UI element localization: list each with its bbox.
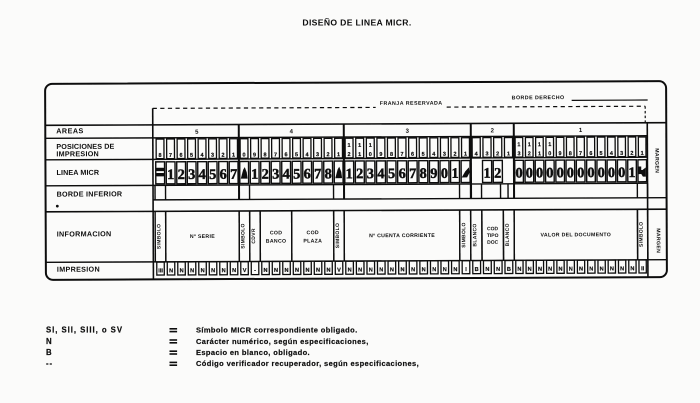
svg-text:N: N (326, 268, 330, 274)
svg-text:1: 1 (369, 143, 372, 149)
svg-text:4: 4 (199, 167, 206, 183)
svg-text:0: 0 (536, 165, 543, 181)
svg-text:N: N (496, 267, 500, 273)
svg-text:N: N (528, 267, 532, 273)
svg-text:N: N (190, 268, 194, 274)
svg-text:II: II (641, 266, 645, 272)
svg-text:BANCO: BANCO (266, 239, 287, 245)
svg-text:IMPRESION: IMPRESION (57, 265, 100, 274)
svg-text:8: 8 (264, 152, 267, 158)
svg-text:2: 2 (630, 151, 633, 157)
svg-text:CDVR: CDVR (251, 228, 257, 243)
svg-text:N: N (232, 268, 236, 274)
svg-text:N: N (548, 267, 552, 273)
svg-text:Espacio en blanco, obligado.: Espacio en blanco, obligado. (196, 348, 310, 357)
svg-text:9: 9 (253, 152, 256, 158)
svg-text:N: N (46, 337, 53, 346)
svg-text:5: 5 (295, 152, 298, 158)
svg-text:0: 0 (546, 165, 553, 181)
svg-text:8: 8 (159, 153, 162, 159)
svg-text:VALOR DEL DOCUMENTO: VALOR DEL DOCUMENTO (541, 232, 612, 238)
svg-text:1: 1 (548, 142, 551, 148)
svg-text:1: 1 (528, 142, 531, 148)
svg-text:N: N (630, 266, 634, 272)
svg-text:3: 3 (620, 151, 623, 157)
svg-text:1: 1 (251, 167, 258, 183)
svg-text:B: B (507, 267, 511, 273)
svg-text:--: -- (46, 359, 53, 368)
svg-text:2: 2 (262, 167, 269, 183)
svg-text:N: N (411, 267, 415, 273)
svg-text:2: 2 (496, 151, 499, 157)
svg-text:1: 1 (337, 152, 340, 158)
svg-text:N: N (558, 267, 562, 273)
svg-text:N: N (284, 268, 288, 274)
svg-text:B: B (46, 348, 53, 357)
svg-text:V: V (337, 268, 341, 274)
svg-text:COD: COD (487, 226, 499, 232)
svg-text:2: 2 (348, 152, 351, 158)
svg-text:0: 0 (618, 165, 625, 181)
svg-text:MARGEN: MARGEN (653, 148, 659, 173)
svg-text:0: 0 (243, 152, 246, 158)
svg-text:1: 1 (464, 152, 467, 158)
svg-text:1: 1 (538, 151, 541, 157)
svg-text:V: V (243, 268, 247, 274)
svg-text:N: N (610, 266, 614, 272)
svg-text:1: 1 (641, 151, 644, 157)
svg-text:0: 0 (608, 165, 615, 181)
svg-text:6: 6 (220, 167, 227, 183)
svg-text:N: N (379, 267, 383, 273)
svg-text:7: 7 (401, 152, 404, 158)
svg-text:N: N (485, 267, 489, 273)
svg-text:3: 3 (443, 152, 446, 158)
svg-text:N: N (600, 266, 604, 272)
svg-text:BLANCO: BLANCO (472, 223, 478, 246)
svg-text:6: 6 (411, 152, 414, 158)
svg-text:0: 0 (587, 165, 594, 181)
svg-text:2: 2 (222, 153, 225, 159)
svg-text:-: - (254, 268, 256, 274)
svg-text:7: 7 (230, 167, 237, 183)
svg-text:1: 1 (507, 151, 510, 157)
svg-text:N: N (422, 267, 426, 273)
svg-text:8: 8 (569, 151, 572, 157)
svg-text:2: 2 (178, 167, 185, 183)
svg-text:N: N (390, 267, 394, 273)
svg-text:N: N (263, 268, 267, 274)
svg-text:BLANCO: BLANCO (505, 223, 511, 246)
svg-text:1: 1 (483, 166, 490, 182)
svg-text:III: III (158, 268, 163, 274)
svg-text:N: N (295, 268, 299, 274)
svg-text:N: N (453, 267, 457, 273)
svg-text:9: 9 (430, 166, 437, 182)
svg-text:5: 5 (388, 166, 395, 182)
svg-text:2: 2 (453, 152, 456, 158)
svg-text:N: N (211, 268, 215, 274)
svg-text:Código verificador recuperador: Código verificador recuperador, según es… (196, 359, 419, 368)
svg-text:TIPO: TIPO (487, 233, 499, 239)
svg-text:8: 8 (390, 152, 393, 158)
svg-text:9: 9 (379, 152, 382, 158)
svg-text:N: N (620, 266, 624, 272)
svg-text:N: N (538, 267, 542, 273)
svg-text:4: 4 (377, 166, 384, 182)
svg-text:2: 2 (356, 166, 363, 182)
svg-text:1: 1 (358, 152, 361, 158)
svg-text:2: 2 (494, 166, 501, 182)
svg-text:1: 1 (451, 166, 458, 182)
svg-text:Nº CUENTA CORRIENTE: Nº CUENTA CORRIENTE (369, 233, 435, 239)
svg-text:0: 0 (557, 165, 564, 181)
svg-text:BORDE DERECHO: BORDE DERECHO (512, 95, 565, 101)
svg-text:N: N (443, 267, 447, 273)
svg-text:N: N (316, 268, 320, 274)
svg-text:LINEA MICR: LINEA MICR (56, 168, 99, 177)
svg-text:5: 5 (190, 153, 193, 159)
svg-text:IMPRESION: IMPRESION (56, 149, 99, 158)
svg-text:B: B (475, 267, 479, 273)
svg-text:3: 3 (517, 151, 520, 157)
svg-text:BORDE INFERIOR: BORDE INFERIOR (57, 189, 123, 198)
svg-text:0: 0 (598, 165, 605, 181)
svg-text:1: 1 (348, 143, 351, 149)
svg-text:3: 3 (316, 152, 319, 158)
svg-text:5: 5 (422, 152, 425, 158)
svg-text:3: 3 (188, 167, 195, 183)
svg-text:N: N (579, 267, 583, 273)
svg-text:N: N (222, 268, 226, 274)
svg-text:6: 6 (589, 151, 592, 157)
svg-text:N: N (201, 268, 205, 274)
svg-text:Símbolo MICR correspondiente o: Símbolo MICR correspondiente obligado. (196, 326, 358, 335)
svg-text:1: 1 (167, 167, 174, 183)
svg-text:2: 2 (327, 152, 330, 158)
svg-text:N: N (400, 267, 404, 273)
svg-text:SIMBOLO: SIMBOLO (156, 224, 162, 249)
svg-text:2: 2 (528, 151, 531, 157)
svg-text:N: N (274, 268, 278, 274)
svg-text:9: 9 (559, 151, 562, 157)
svg-text:COD: COD (306, 230, 318, 236)
svg-text:5: 5 (293, 166, 300, 182)
svg-text:0: 0 (526, 165, 533, 181)
svg-text:7: 7 (409, 166, 416, 182)
svg-text:0: 0 (369, 152, 372, 158)
svg-text:0: 0 (577, 165, 584, 181)
svg-text:INFORMACION: INFORMACION (57, 229, 112, 238)
svg-text:5: 5 (600, 151, 603, 157)
svg-text:7: 7 (579, 151, 582, 157)
svg-text:N: N (569, 267, 573, 273)
svg-text:SIMBOLO: SIMBOLO (461, 222, 467, 247)
svg-text:3: 3 (211, 153, 214, 159)
svg-text:3: 3 (485, 151, 488, 157)
svg-text:1: 1 (346, 166, 353, 182)
svg-text:0: 0 (441, 166, 448, 182)
svg-text:6: 6 (399, 166, 406, 182)
svg-text:N: N (517, 267, 521, 273)
svg-text:1: 1 (538, 142, 541, 148)
svg-text:FRANJA RESERVADA: FRANJA RESERVADA (380, 101, 443, 107)
svg-text:0: 0 (567, 165, 574, 181)
svg-text:6: 6 (304, 166, 311, 182)
svg-text:0: 0 (548, 151, 551, 157)
svg-text:SIMBOLO: SIMBOLO (639, 222, 645, 247)
svg-text:1: 1 (358, 143, 361, 149)
svg-text:N: N (169, 268, 173, 274)
svg-text:MARGEN: MARGEN (655, 228, 661, 253)
svg-text:N: N (432, 267, 436, 273)
svg-text:DISEÑO DE LINEA MICR.: DISEÑO DE LINEA MICR. (302, 18, 411, 28)
svg-text:6: 6 (180, 153, 183, 159)
svg-text:SI, SII, SIII, o SV: SI, SII, SIII, o SV (46, 326, 123, 335)
svg-text:SIMBOLO: SIMBOLO (335, 223, 341, 248)
svg-text:SIMBOLO: SIMBOLO (240, 223, 246, 248)
svg-text:5: 5 (209, 167, 216, 183)
svg-text:Carácter numérico, según espec: Carácter numérico, según especificacione… (196, 337, 369, 346)
svg-text:PLAZA: PLAZA (303, 238, 322, 244)
svg-text:N: N (369, 267, 373, 273)
svg-text:AREAS: AREAS (56, 126, 83, 135)
svg-text:8: 8 (325, 166, 332, 182)
svg-text:7: 7 (314, 166, 321, 182)
svg-text:Nº SERIE: Nº SERIE (190, 234, 215, 240)
svg-text:1: 1 (628, 165, 635, 181)
svg-text:N: N (589, 266, 593, 272)
svg-text:N: N (305, 268, 309, 274)
svg-text:N: N (348, 268, 352, 274)
svg-text:1: 1 (517, 142, 520, 148)
svg-text:8: 8 (420, 166, 427, 182)
svg-text:DOC: DOC (487, 240, 499, 246)
svg-text:4: 4 (283, 166, 290, 182)
svg-text:N: N (358, 267, 362, 273)
svg-text:0: 0 (515, 165, 522, 181)
svg-text:COD: COD (270, 230, 282, 236)
svg-text:N: N (180, 268, 184, 274)
svg-text:7: 7 (274, 152, 277, 158)
svg-text:1: 1 (232, 153, 235, 159)
svg-text:3: 3 (367, 166, 374, 182)
svg-text:3: 3 (272, 167, 279, 183)
svg-text:6: 6 (285, 152, 288, 158)
svg-text:7: 7 (169, 153, 172, 159)
